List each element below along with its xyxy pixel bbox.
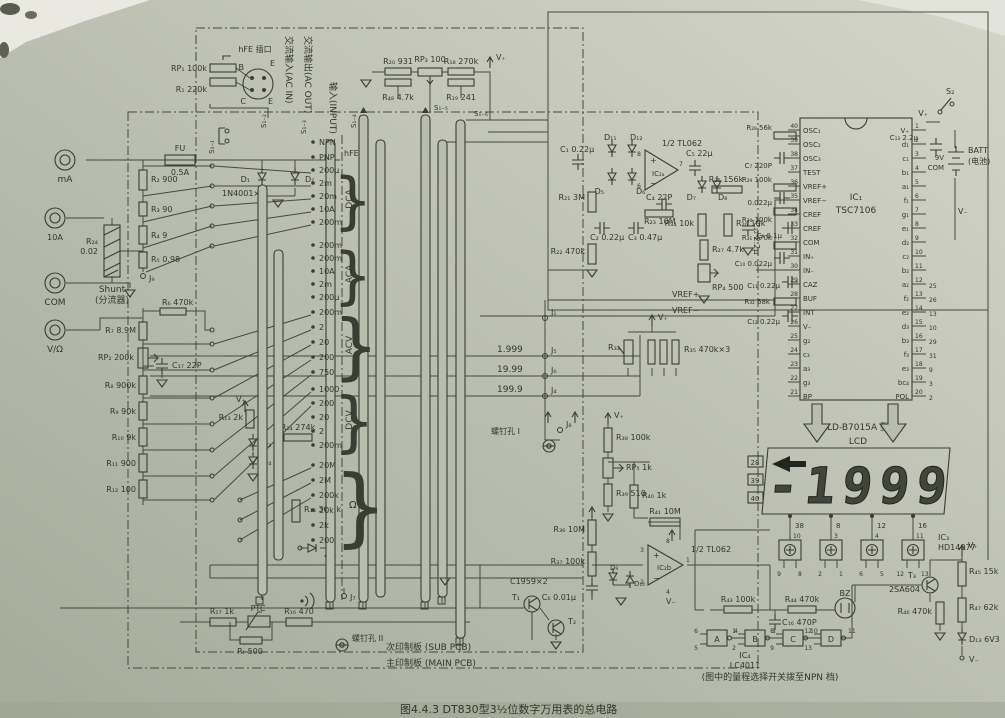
vplus-label: V₊ — [614, 411, 624, 420]
svg-text:V₋: V₋ — [803, 323, 812, 331]
svg-text:INT: INT — [803, 309, 815, 317]
svg-text:TEST: TEST — [802, 169, 821, 177]
range-dcv-label: DCV — [345, 409, 355, 429]
pin: 7 — [679, 161, 683, 168]
svg-text:d₂: d₂ — [902, 239, 909, 247]
r46-label: R₄₆ 470k — [898, 607, 933, 616]
battery-voltage: 9V — [935, 154, 944, 162]
svg-text:2m: 2m — [319, 179, 332, 188]
j4-label: J₄ — [550, 386, 557, 395]
rp4-label: RP₄ 500 — [712, 283, 743, 292]
svg-text:12: 12 — [915, 277, 923, 284]
cal-1999-label: 1.999 — [497, 345, 523, 355]
svg-text:e₃: e₃ — [902, 365, 909, 373]
vplus-label: V₊ — [968, 541, 978, 550]
svg-text:6: 6 — [694, 628, 698, 635]
svg-text:29: 29 — [929, 339, 937, 346]
r31-label: R₃₁ 470k — [742, 234, 773, 242]
svg-text:D: D — [828, 635, 834, 644]
vminus-label: V₋ — [666, 597, 676, 606]
svg-text:10: 10 — [793, 533, 801, 540]
t3-label: T₃ — [907, 571, 916, 580]
r6-label: R₆ 470k — [162, 298, 194, 307]
r12-label: R₁₂ 100 — [106, 485, 136, 494]
ic1-ref: IC₁ — [850, 193, 863, 203]
jack-ma-label: mA — [58, 175, 74, 185]
svg-text:15: 15 — [915, 319, 923, 326]
svg-text:40: 40 — [790, 123, 798, 130]
svg-text:200: 200 — [319, 353, 334, 362]
svg-text:1: 1 — [839, 571, 843, 578]
c4-label: C₄ 22P — [646, 193, 673, 202]
svg-text:CAZ: CAZ — [803, 281, 818, 289]
svg-text:31: 31 — [929, 353, 937, 360]
hfe-pin-c: C — [240, 97, 246, 106]
svg-text:2: 2 — [319, 427, 324, 436]
r8-label: R₈ 900k — [105, 381, 137, 390]
ic4-part: LC4011 — [730, 661, 760, 670]
r20-label: R₂₀ 931 — [383, 57, 413, 66]
svg-text:12: 12 — [804, 628, 812, 635]
shunt-value: 0.02 — [80, 247, 98, 256]
c1-label: C₁ 0.22μ — [560, 145, 594, 154]
svg-text:39: 39 — [751, 477, 760, 485]
vplus-label: V₊ — [236, 395, 246, 404]
svg-text:+: + — [653, 551, 660, 560]
svg-text:A: A — [714, 635, 720, 644]
shunt-name: Shunt — [99, 285, 126, 295]
brace: } — [333, 457, 388, 557]
svg-text:3: 3 — [834, 533, 838, 540]
j5-label: J₅ — [550, 346, 557, 355]
svg-text:2M: 2M — [319, 476, 331, 485]
svg-text:38: 38 — [790, 151, 798, 158]
svg-text:IN₋: IN₋ — [803, 267, 814, 275]
svg-text:3: 3 — [915, 151, 919, 158]
svg-text:c₃: c₃ — [803, 351, 810, 359]
svg-text:7: 7 — [915, 207, 919, 214]
r45-label: R₄₅ 15k — [969, 567, 999, 576]
svg-text:35: 35 — [790, 193, 798, 200]
c16-label: C₁₆ 470P — [782, 618, 817, 627]
svg-text:C: C — [790, 635, 796, 644]
vplus-label: V₊ — [496, 53, 506, 62]
ptc-label: PTC — [251, 604, 266, 613]
svg-text:23: 23 — [790, 361, 798, 368]
cal-199b-label: 199.9 — [497, 385, 523, 395]
svg-text:10: 10 — [915, 249, 923, 256]
svg-text:e₁: e₁ — [902, 225, 909, 233]
svg-text:8: 8 — [836, 522, 840, 530]
hfe-pin-e2: E — [268, 97, 273, 106]
svg-text:2: 2 — [929, 395, 933, 402]
svg-text:b₂: b₂ — [902, 267, 909, 275]
pin: 4 — [666, 589, 670, 596]
r1-label: R₁ 220k — [176, 85, 208, 94]
s1-2-label: S₁₋₂ — [260, 114, 268, 128]
svg-text:25: 25 — [929, 283, 937, 290]
s1-4-label: S₁₋₄ — [350, 114, 358, 128]
range-dca-label: DCA — [345, 188, 355, 208]
svg-text:3: 3 — [929, 381, 933, 388]
r18-label: R₁₈ 270k — [444, 57, 479, 66]
svg-text:750: 750 — [319, 368, 334, 377]
svg-text:BP: BP — [803, 393, 812, 401]
pin: 8 — [666, 538, 670, 545]
range-aca-label: ACA — [345, 264, 355, 283]
c5-label: C₅ 22μ — [686, 149, 713, 158]
svg-text:20: 20 — [319, 338, 329, 347]
svg-text:40: 40 — [751, 495, 760, 503]
c7-label: C₇ 220P — [744, 162, 772, 170]
svg-text:9: 9 — [929, 367, 933, 374]
range-ohm-label: Ω — [349, 500, 357, 511]
j6-label: J₆ — [550, 366, 557, 375]
r35-label: R₃₅ 470k×3 — [684, 345, 730, 354]
r38-label: R₃₈ 100k — [616, 433, 651, 442]
svg-text:13: 13 — [929, 311, 937, 318]
svg-text:6: 6 — [915, 193, 919, 200]
ic2b-type-label: 1/2 TL062 — [691, 545, 731, 554]
svg-text:5: 5 — [915, 179, 919, 186]
svg-text:1: 1 — [732, 628, 736, 635]
r10-label: R₁₀ 9k — [112, 433, 137, 442]
r25-label: R₂₅ 156k — [709, 175, 744, 184]
svg-text:d₃: d₃ — [902, 323, 909, 331]
c6-label: C₆ 0.01μ — [542, 593, 576, 602]
s1-6-label: S₁₋₆ — [474, 110, 488, 118]
r16-label: R₁₆ 470 — [284, 607, 314, 616]
pin: 8 — [637, 151, 641, 158]
battery-com: COM — [928, 164, 944, 172]
pin: 6 — [637, 183, 641, 190]
svg-text:20k: 20k — [319, 506, 334, 515]
shunt-ref: R₂₄ — [86, 237, 98, 246]
svg-text:PNP: PNP — [319, 153, 335, 162]
s2-label: S₂ — [946, 87, 954, 96]
r5-label: R₅ 0.98 — [151, 255, 180, 264]
svg-text:g₃: g₃ — [803, 379, 810, 387]
range-acv-label: ACV — [345, 335, 355, 354]
svg-text:28: 28 — [751, 459, 760, 467]
svg-text:2: 2 — [732, 645, 736, 652]
svg-text:32: 32 — [790, 235, 798, 242]
c12-label: C₁₂ 0.22μ — [747, 318, 780, 326]
main-pcb-label: 主印制板 (MAIN PCB) — [386, 657, 476, 669]
svg-text:8: 8 — [770, 628, 774, 635]
d13-label: D₁₃ 6V3 — [969, 635, 1000, 644]
ic2b-label: IC₂b — [657, 564, 672, 572]
rp2-label: RP₂ 200k — [98, 353, 134, 362]
r48-label: R₄₈ 4.7k — [382, 93, 414, 102]
s1-3-label: S₁₋₃ — [300, 120, 308, 134]
svg-text:28: 28 — [790, 291, 798, 298]
r32-label: R₃₂ 68k — [744, 298, 771, 306]
r22-label: R₂₂ 470k — [551, 247, 586, 256]
svg-text:9: 9 — [915, 235, 919, 242]
j9-label: J₉ — [148, 274, 155, 283]
vplus-label: V₊ — [658, 313, 668, 322]
svg-text:VREF+: VREF+ — [803, 183, 827, 191]
hfe-pin-b: B — [239, 63, 245, 72]
s1-5-label: S₁₋₅ — [434, 104, 448, 112]
input-note: 输入(INPUT) — [327, 82, 339, 134]
svg-text:36: 36 — [790, 179, 798, 186]
svg-text:c₂: c₂ — [902, 253, 909, 261]
r28-label: R₂₈ 56k — [746, 124, 773, 132]
ic4-ref: IC₄ — [739, 651, 750, 660]
range-hfe-label: hFE — [344, 149, 359, 158]
ic3-ref: IC₃ — [938, 533, 949, 542]
j7-label: J₇ — [349, 593, 356, 602]
svg-text:CREF: CREF — [803, 211, 821, 219]
svg-text:4: 4 — [915, 165, 919, 172]
svg-text:a₃: a₃ — [803, 365, 810, 373]
lcd-label: LCD — [849, 437, 867, 447]
pin: 3 — [640, 547, 644, 554]
svg-text:20: 20 — [915, 389, 923, 396]
fuse-ref: FU — [175, 144, 186, 153]
svg-text:a₁: a₁ — [902, 183, 909, 191]
cal-1999b-label: 19.99 — [497, 365, 523, 375]
svg-text:37: 37 — [790, 165, 798, 172]
svg-text:8: 8 — [798, 571, 802, 578]
svg-text:9: 9 — [777, 571, 781, 578]
vminus-label: V₋ — [969, 655, 979, 664]
rp5-label: RP₅ 1k — [626, 463, 652, 472]
svg-text:f₂: f₂ — [904, 295, 909, 303]
svg-text:22: 22 — [790, 375, 798, 382]
svg-text:30: 30 — [790, 263, 798, 270]
c10-label: C₁₀ 0.022μ — [735, 260, 773, 268]
svg-text:5: 5 — [694, 645, 698, 652]
svg-text:12: 12 — [877, 522, 886, 530]
c1959-label: C1959×2 — [510, 577, 548, 586]
svg-text:12: 12 — [896, 571, 904, 578]
bz-label: BZ — [840, 589, 851, 598]
svg-text:19: 19 — [915, 375, 923, 382]
svg-text:13: 13 — [915, 291, 923, 298]
svg-text:39: 39 — [790, 137, 798, 144]
svg-text:18: 18 — [915, 361, 923, 368]
svg-text:11: 11 — [916, 533, 924, 540]
brace: } — [333, 304, 379, 388]
ic2a-type-label: 1/2 TL062 — [662, 139, 702, 148]
svg-text:−: − — [653, 574, 660, 583]
jack-10a-label: 10A — [47, 233, 63, 242]
r21-label: R₂₁ 3M — [558, 193, 585, 202]
d8-label: D₈ — [718, 193, 727, 202]
svg-text:OSC₃: OSC₃ — [803, 155, 821, 163]
svg-text:OSC₂: OSC₂ — [803, 141, 821, 149]
shunt-name-cn: (分流器) — [95, 294, 129, 306]
svg-text:9: 9 — [770, 645, 774, 652]
svg-text:c₁: c₁ — [902, 155, 909, 163]
r9-label: R₉ 90k — [110, 407, 136, 416]
range-note: (图中的量程选择开关拨至NPN 档) — [702, 671, 839, 683]
svg-text:2m: 2m — [319, 280, 332, 289]
r37-label: R₃₇ 100k — [551, 557, 586, 566]
t1-label: T₁ — [511, 593, 520, 602]
rp3-label: RP₃ 100 — [414, 55, 445, 64]
svg-text:16: 16 — [918, 522, 927, 530]
svg-text:16: 16 — [915, 333, 923, 340]
svg-text:e₂: e₂ — [902, 309, 909, 317]
d9-label: D₉ — [610, 564, 618, 572]
ac-in-note: 交流输入(AC IN) — [283, 36, 295, 104]
svg-text:bc₄: bc₄ — [898, 379, 909, 387]
r36-label: R₃₆ 10M — [553, 525, 585, 534]
svg-text:g₁: g₁ — [902, 211, 909, 219]
r2-label: R₂ 900 — [151, 175, 178, 184]
svg-text:1: 1 — [915, 123, 919, 130]
svg-text:17: 17 — [915, 347, 923, 354]
ic2a-label: IC₂ₐ — [652, 170, 665, 178]
r40-label: R₄₀ 1k — [642, 491, 667, 500]
r29-label: R₂₉ 100k — [742, 176, 773, 184]
svg-text:b₁: b₁ — [902, 169, 909, 177]
svg-text:a₂: a₂ — [902, 281, 909, 289]
svg-text:CREF: CREF — [803, 225, 821, 233]
svg-text:NPN: NPN — [319, 138, 336, 147]
t2-label: T₂ — [567, 617, 576, 626]
r47-label: R₄₇ 62k — [969, 603, 999, 612]
svg-text:2: 2 — [319, 323, 324, 332]
svg-text:OSC₁: OSC₁ — [803, 127, 821, 135]
battery-label-cn: (电池) — [968, 156, 990, 166]
vref-plus-label: VREF+ — [672, 290, 699, 299]
r34-label: R₃₄ 10k — [665, 219, 695, 228]
schematic-canvas: mA FU 0.5A D₁ D₂ 1N4001×2 10A COM R₂₄ 0.… — [0, 0, 1005, 718]
c3-label: C₃ 0.47μ — [628, 233, 662, 242]
hfe-pin-e: E — [270, 59, 275, 68]
svg-text:200: 200 — [319, 399, 334, 408]
svg-text:BUF: BUF — [803, 295, 817, 303]
j8-label: J₈ — [565, 420, 572, 429]
screw2-label: 螺钉孔 II — [352, 633, 383, 643]
c17-label: C₁₇ 22P — [172, 361, 202, 370]
svg-text:B: B — [752, 635, 758, 644]
svg-text:f₃: f₃ — [904, 351, 909, 359]
schematic-page: mA FU 0.5A D₁ D₂ 1N4001×2 10A COM R₂₄ 0.… — [0, 0, 1005, 718]
svg-text:25: 25 — [790, 333, 798, 340]
svg-text:2: 2 — [818, 571, 822, 578]
d1-label: D₁ — [241, 175, 250, 184]
r27-label: R₂₇ 4.7k — [712, 245, 744, 254]
svg-text:38: 38 — [795, 522, 804, 530]
jack-com-label: COM — [44, 298, 65, 308]
jack-vohm-label: V/Ω — [47, 345, 63, 355]
pin: 1 — [686, 557, 690, 564]
c2-label: C₂ 0.22μ — [590, 233, 624, 242]
vref-minus-label: VREF− — [672, 306, 699, 315]
svg-text:200: 200 — [319, 536, 334, 545]
svg-text:6: 6 — [859, 571, 863, 578]
sub-pcb-label: 次印制板 (SUB PCB) — [386, 641, 471, 653]
svg-text:10: 10 — [929, 325, 937, 332]
hfe-socket-title: hFE 插口 — [238, 44, 271, 54]
svg-text:31: 31 — [790, 249, 798, 256]
rt-label: Rₜ 500 — [237, 647, 263, 656]
svg-text:POL: POL — [895, 393, 909, 401]
r4-label: R₄ 9 — [151, 231, 167, 240]
d12-label: D₁₂ — [630, 133, 643, 142]
rp1-label: RP₁ 100k — [171, 64, 207, 73]
svg-text:IN₊: IN₊ — [803, 253, 814, 261]
r43-label: R₄₃ 100k — [721, 595, 756, 604]
svg-text:24: 24 — [790, 347, 798, 354]
d7-label: D₇ — [687, 193, 696, 202]
svg-text:COM: COM — [803, 239, 819, 247]
c11-label: C₁₁ 0.22μ — [747, 282, 780, 290]
c13-label: C₁₃ 2.2μ — [890, 134, 919, 142]
svg-text:21: 21 — [790, 389, 798, 396]
r14-label: R₁₄ 274k — [281, 423, 316, 432]
svg-text:VREF−: VREF− — [803, 197, 827, 205]
d11-label: D₁₁ — [604, 133, 617, 142]
svg-text:14: 14 — [915, 305, 923, 312]
svg-text:f₁: f₁ — [904, 197, 909, 205]
t3-part: 2SA604 — [889, 585, 920, 594]
r33-label: R₃₃ — [608, 343, 620, 352]
svg-text:5: 5 — [880, 571, 884, 578]
j1-label: J₁ — [550, 308, 557, 317]
r44-label: R₄₄ 470k — [785, 595, 820, 604]
vminus-label: V₋ — [958, 207, 968, 216]
d10-label: D₁₀ — [634, 580, 645, 588]
svg-text:+: + — [650, 156, 657, 165]
svg-text:11: 11 — [848, 628, 856, 635]
ic1-part: TSC7106 — [835, 206, 877, 216]
svg-text:2k: 2k — [319, 521, 329, 530]
vplus-label: V₊ — [918, 109, 928, 118]
battery-label: BATT — [968, 146, 988, 155]
r19-label: R₁₉ 241 — [446, 93, 476, 102]
svg-text:d₁: d₁ — [902, 141, 909, 149]
svg-text:b₃: b₃ — [902, 337, 909, 345]
r30-label: R₃₀ 100k — [742, 216, 773, 224]
svg-text:−: − — [650, 179, 657, 188]
r11-label: R₁₁ 900 — [106, 459, 136, 468]
svg-text:11: 11 — [915, 263, 923, 270]
svg-text:g₂: g₂ — [803, 337, 810, 345]
s1-1-label: S₁₋₁ — [208, 140, 216, 154]
figure-caption: 图4.4.3 DT830型3½位数字万用表的总电路 — [400, 702, 617, 716]
svg-text:4: 4 — [875, 533, 879, 540]
r7-label: R₇ 8.9M — [105, 326, 136, 335]
svg-text:8: 8 — [915, 221, 919, 228]
ac-out-note: 交流输出(AC OUT) — [302, 36, 314, 113]
r3-label: R₃ 90 — [151, 205, 173, 214]
r17-label: R₁₇ 1k — [210, 607, 235, 616]
r13-label: R₁₃ 2k — [219, 413, 244, 422]
svg-text:26: 26 — [929, 297, 937, 304]
svg-text:13: 13 — [804, 645, 812, 652]
c9-label: 0.022μ — [748, 199, 773, 207]
r41-label: R₄₁ 10M — [649, 507, 681, 516]
svg-text:20: 20 — [319, 413, 329, 422]
screw1-label: 螺钉孔 I — [491, 426, 520, 436]
lcd-reading: -1999 — [765, 456, 957, 515]
